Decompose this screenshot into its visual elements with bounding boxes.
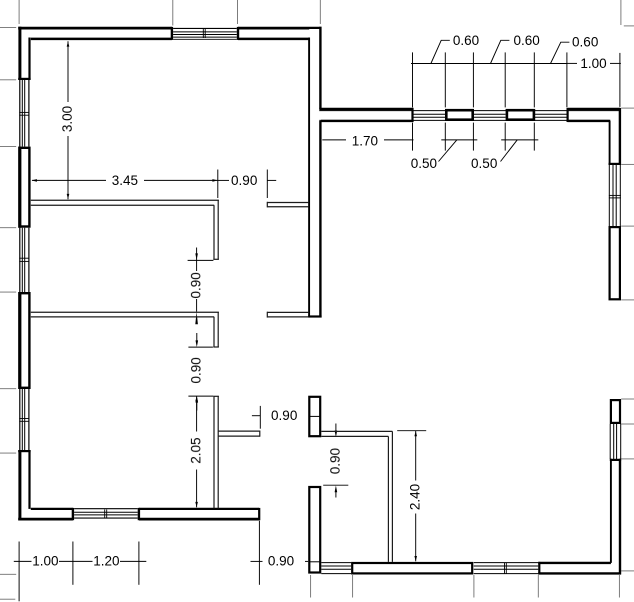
svg-text:0.90: 0.90 [328,448,343,474]
svg-text:1.00: 1.00 [32,553,58,568]
svg-text:0.60: 0.60 [513,33,539,48]
svg-text:0.60: 0.60 [453,33,479,48]
svg-text:0.90: 0.90 [189,357,204,383]
svg-text:0.90: 0.90 [188,272,203,298]
svg-text:2.05: 2.05 [188,437,203,463]
svg-text:1.20: 1.20 [93,553,119,568]
svg-text:1.70: 1.70 [352,134,378,149]
svg-text:0.90: 0.90 [268,553,294,568]
svg-text:0.60: 0.60 [572,35,598,50]
svg-text:1.00: 1.00 [580,56,606,71]
svg-text:0.90: 0.90 [271,408,297,423]
svg-text:0.90: 0.90 [231,173,257,188]
svg-text:0.50: 0.50 [411,156,437,171]
svg-text:0.50: 0.50 [471,156,497,171]
svg-text:3.45: 3.45 [112,173,138,188]
svg-text:3.00: 3.00 [60,106,75,132]
svg-text:2.40: 2.40 [408,484,423,510]
